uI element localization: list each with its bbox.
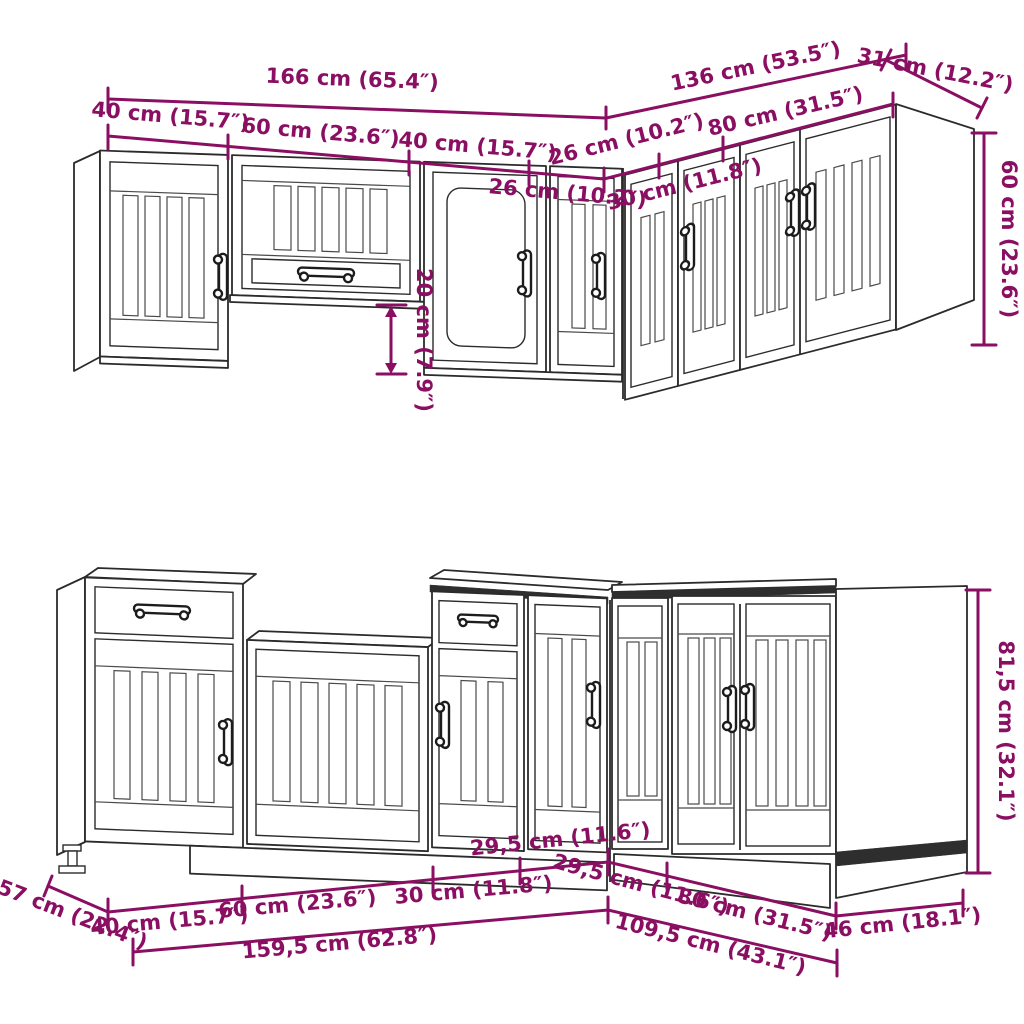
base-cabinet-40 xyxy=(85,577,243,847)
wall-cabinet-left-side-panel xyxy=(74,151,100,371)
diagram-svg: 166 cm (65.4″) 136 cm (53.5″) 31 cm (12.… xyxy=(0,0,1024,1024)
dim-label: 159,5 cm (62.8″) xyxy=(241,923,438,964)
base-corner-cabinet-left-face xyxy=(528,595,607,852)
base-cabinet-left-side-panel xyxy=(57,577,85,855)
dim-top-height: 60 cm (23.6″) xyxy=(972,133,1021,345)
kitchen-cabinet-dimension-diagram: 166 cm (65.4″) 136 cm (53.5″) 31 cm (12.… xyxy=(0,0,1024,1024)
wall-cabinet-80-double xyxy=(740,104,896,369)
dim-label: 60 cm (23.6″) xyxy=(997,160,1021,319)
base-cabinet-80-double xyxy=(672,596,836,854)
dim-label: 31 cm (12.2″) xyxy=(855,43,1015,97)
cabinet-foot xyxy=(59,845,85,873)
base-cabinet-60 xyxy=(247,640,428,851)
base-cabinet-30 xyxy=(432,591,524,851)
dim-label: 166 cm (65.4″) xyxy=(265,64,439,95)
wall-cabinet-40-left xyxy=(100,150,228,367)
dim-bottom-depth-right: 46 cm (18.1″) xyxy=(822,890,982,943)
dim-label: 20 cm (7.9″) xyxy=(412,268,436,412)
dim-label: 81,5 cm (32.1″) xyxy=(994,640,1018,821)
base-corner-cabinet-right-face xyxy=(612,598,668,849)
base-cabinets-drawing xyxy=(57,568,967,908)
wall-cabinet-60 xyxy=(230,155,432,309)
glass-door-pane xyxy=(447,188,525,349)
dim-label: 60 cm (23.6″) xyxy=(241,113,401,151)
dim-bottom-height: 81,5 cm (32.1″) xyxy=(966,590,1018,873)
wall-cabinet-right-side-panel xyxy=(896,104,974,330)
dim-label: 40 cm (15.7″) xyxy=(398,127,558,165)
